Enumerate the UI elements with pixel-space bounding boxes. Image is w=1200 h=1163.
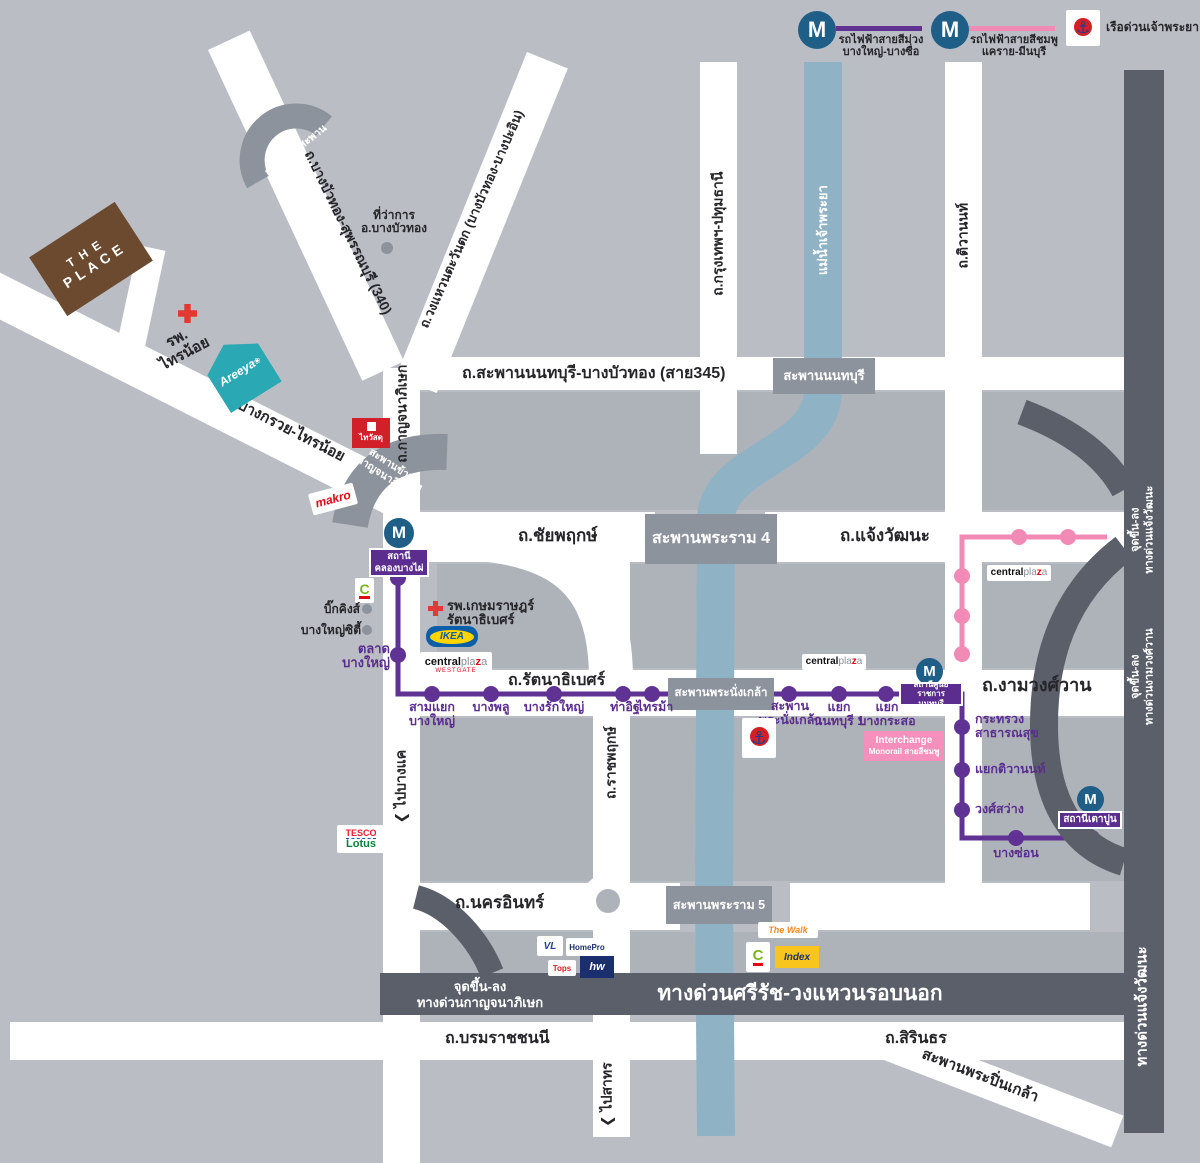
tao-pun-station-label: สถานีเตาปูน (1058, 811, 1122, 829)
big-kings-label: บิ๊กคิงส์ (298, 603, 360, 616)
legend-boat-label: เรือด่วนเจ้าพระยา (1106, 21, 1199, 34)
bang-yai-city-label: บางใหญ่ซิตี้ (293, 624, 361, 637)
label-borommaratchachonnani: ถ.บรมราชชนนี (445, 1030, 550, 1048)
khlong-bang-phai-m-icon: M (384, 518, 414, 548)
ngamwongwan-access-label: จุดขึ้น-ลง ทางด่วนงามวงศ์วาน (1129, 592, 1157, 762)
legend-purple-line-swatch (836, 26, 922, 31)
transit-location-map: กลับรถใต้สะพาน สะพานข้าม กาญจนาภิเษก สะพ… (0, 0, 1200, 1163)
label-sai345: ถ.สะพานนนทบุรี-บางบัวทอง (สาย345) (462, 365, 725, 383)
label-nakhon-in: ถ.นครอินทร์ (455, 894, 544, 913)
station-ministry-public-health: กระทรวง สาธารณสุข (975, 713, 1065, 741)
central-westgate-logo: centralplaza WESTGATE (420, 652, 492, 679)
district-office-label: ที่ว่าการ อ.บางบัวทอง (352, 209, 436, 235)
legend-purple-m-icon: M (798, 11, 836, 49)
label-ngamwongwan: ถ.งามวงศ์วาน (982, 676, 1092, 696)
label-rattanathibet: ถ.รัตนาธิเบศร์ (508, 672, 605, 690)
anchor-icon: ⚓ (1076, 18, 1090, 38)
ikea-oval: IKEA (430, 630, 474, 644)
label-river: แม่น้ำเจ้าพระยา (815, 160, 831, 300)
the-walk-logo: The Walk (758, 922, 818, 938)
kasemrad-hospital-label: รพ.เกษมราษฎร์ รัตนาธิเบศร์ (447, 599, 534, 628)
station-bang-phlu: บางพลู (459, 701, 523, 715)
tao-pun-m-icon: M (1077, 786, 1104, 813)
label-kanchanaphisek: ถ.กาญจนาภิเษก (394, 354, 409, 474)
label-bangkok-pathumthani: ถ.กรุงเทพฯ-ปทุมธานี (710, 154, 725, 314)
legend-boat-icon: ⚓ (1066, 10, 1100, 46)
big-c-logo: C (355, 578, 374, 603)
direction-arrow-icon: ❮ (392, 812, 408, 824)
ikea-logo: IKEA (426, 626, 478, 647)
thai-watsadu-logo: ไทวัสดุ (352, 418, 390, 448)
station-sam-yaek-bang-yai: สามแยก บางใหญ่ (400, 701, 464, 729)
bang-yai-city-dot (362, 625, 372, 635)
khlong-bang-phai-station-label: สถานี คลองบางไผ่ (369, 548, 429, 577)
chaengwattana-access-label: จุดขึ้น-ลง ทางด่วนแจ้งวัฒนะ (1129, 465, 1157, 595)
expressway-ramp (1022, 412, 1124, 490)
tops-logo: Tops (548, 960, 576, 976)
station-yaek-bang-kraso: แยก บางกระสอ (856, 701, 918, 729)
station-bang-son: บางซ่อน (986, 847, 1046, 861)
index-logo: Index (775, 946, 819, 968)
label-to-bang-khae: ❮ ไปบางแค (393, 737, 408, 837)
direction-arrow-icon: ❮ (598, 1115, 614, 1127)
station-talad-bang-yai: ตลาด บางใหญ่ (334, 642, 390, 671)
station-yaek-tiwanon: แยกติวานนท์ (975, 763, 1070, 777)
tesco-lotus-logo: TESCO Lotus (337, 825, 385, 853)
label-chaengwattana: ถ.แจ้งวัฒนะ (840, 527, 930, 546)
chao-phraya-boat-logo: ⚓ (742, 718, 776, 758)
kanchana-access-label: จุดขึ้น-ลง ทางด่วนกาญจนาภิเษก (400, 979, 560, 1012)
station-wong-sawang: วงศ์สว่าง (975, 803, 1060, 817)
label-tiwanon: ถ.ติวานนท์ (955, 176, 970, 296)
vl-logo: VL (537, 936, 563, 956)
thai-watsadu-icon (367, 422, 376, 431)
homeworks-logo: hw (580, 956, 614, 978)
station-sai-ma: ไทรม้า (631, 701, 679, 715)
interchange-monorail-label: Interchange Monorail สายสีชมพู (864, 731, 944, 761)
legend-purple-label: รถไฟฟ้าสายสีม่วง บางใหญ่-บางซื่อ (836, 34, 926, 58)
station-bang-rak-yai: บางรักใหญ่ (520, 701, 588, 715)
anchor-icon: ⚓ (751, 728, 767, 749)
legend-pink-m-icon: M (931, 11, 969, 49)
label-to-sathorn: ❮ ไปสาทร (599, 1045, 614, 1145)
label-chaiyaphruek: ถ.ชัยพฤกษ์ (518, 527, 598, 546)
big-c-rama5-logo: C (746, 942, 770, 972)
big-kings-dot (362, 604, 372, 614)
legend-pink-line-swatch (969, 26, 1055, 31)
district-office-dot (381, 242, 393, 254)
sirat-expressway-label: ทางด่วนศรีรัช-วงแหวนรอบนอก (650, 981, 950, 1007)
central-rattanathibet-logo: centralplaza (802, 654, 866, 670)
chaengwattana-expressway-label: ทางด่วนแจ้งวัฒนะ (1134, 876, 1153, 1136)
label-ratchaphruek: ถ.ราชพฤกษ์ (603, 703, 618, 823)
legend-pink-label: รถไฟฟ้าสายสีชมพู แคราย-มีนบุรี (969, 34, 1059, 58)
central-chaengwattana-logo: centralplaza (987, 565, 1051, 581)
homepro-logo: HomePro (566, 938, 608, 956)
